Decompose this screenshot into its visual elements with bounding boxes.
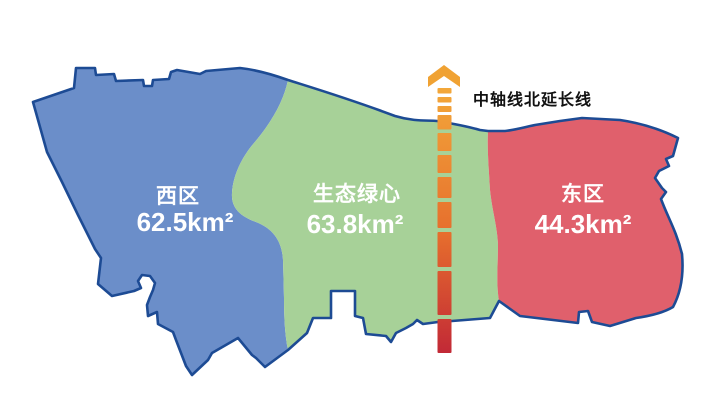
region-name-west: 西区 (156, 185, 200, 208)
region-name-east: 东区 (561, 182, 605, 206)
region-area-east: 44.3km² (535, 209, 632, 239)
map-figure: 中轴线北延长线 西区 62.5km² 生态绿心 63.8km² 东区 44.3k… (0, 0, 718, 407)
axis-label: 中轴线北延长线 (473, 90, 592, 109)
axis-dash (438, 97, 452, 103)
axis-dash (438, 319, 452, 353)
axis-dash (438, 155, 452, 173)
north-arrow-icon (428, 65, 460, 87)
axis-dash (438, 271, 452, 315)
region-area-west: 62.5km² (137, 207, 234, 237)
region-area-green-heart: 63.8km² (307, 209, 404, 239)
axis-dash (438, 133, 452, 151)
axis-dash (438, 177, 452, 198)
axis-dashes (438, 88, 452, 353)
axis-dash (438, 202, 452, 228)
axis-dash (438, 106, 452, 112)
map-canvas: 中轴线北延长线 西区 62.5km² 生态绿心 63.8km² 东区 44.3k… (0, 0, 718, 407)
axis-dash (438, 115, 452, 130)
axis-dash (438, 88, 452, 94)
region-name-green-heart: 生态绿心 (313, 182, 401, 206)
axis-dash (438, 232, 452, 267)
